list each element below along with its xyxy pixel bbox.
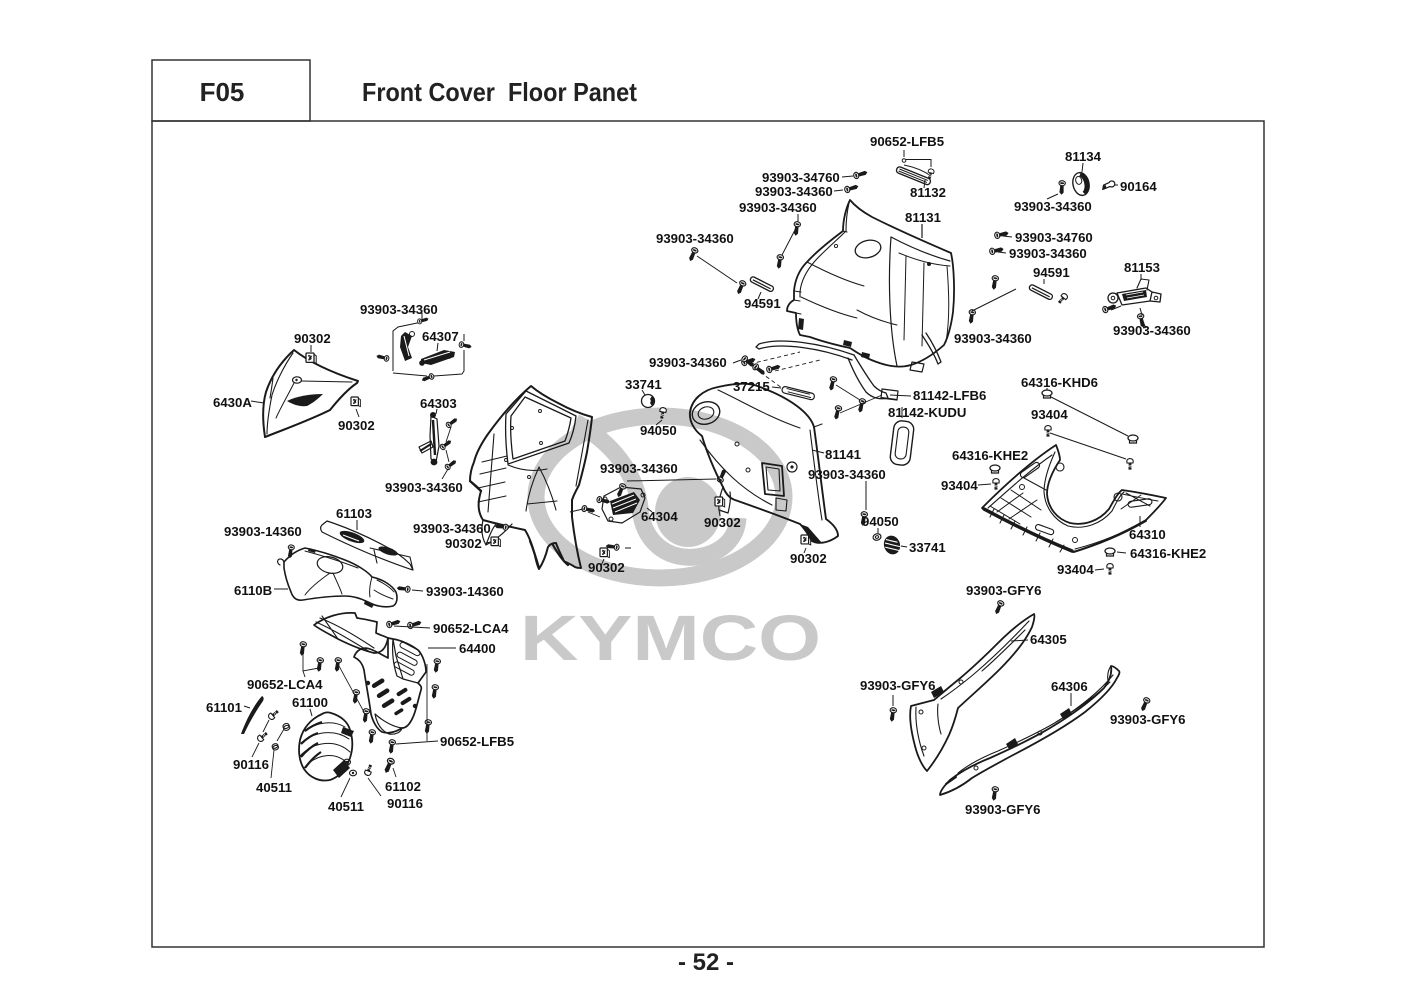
svg-text:94050: 94050: [640, 423, 677, 438]
svg-text:64307: 64307: [422, 329, 459, 344]
svg-text:64316-KHE2: 64316-KHE2: [1130, 546, 1206, 561]
svg-text:81141: 81141: [825, 447, 861, 462]
svg-text:64400: 64400: [459, 641, 496, 656]
svg-text:KYMCO: KYMCO: [520, 602, 821, 674]
svg-text:90652-LCA4: 90652-LCA4: [433, 621, 509, 636]
svg-text:93903-34360: 93903-34360: [808, 467, 886, 482]
svg-text:90116: 90116: [233, 757, 269, 772]
svg-text:93903-34760: 93903-34760: [1015, 230, 1093, 245]
svg-text:93903-14360: 93903-14360: [426, 584, 504, 599]
svg-text:90302: 90302: [704, 515, 741, 530]
svg-text:61103: 61103: [336, 506, 372, 521]
svg-text:93903-34360: 93903-34360: [1014, 199, 1092, 214]
svg-text:- 52 -: - 52 -: [678, 949, 734, 976]
svg-text:64306: 64306: [1051, 679, 1088, 694]
svg-text:64303: 64303: [420, 396, 457, 411]
svg-text:61102: 61102: [385, 779, 421, 794]
svg-text:90116: 90116: [387, 796, 423, 811]
svg-text:93903-34360: 93903-34360: [600, 461, 678, 476]
svg-text:6110B: 6110B: [234, 583, 272, 598]
svg-text:6430A: 6430A: [213, 395, 252, 410]
svg-text:93903-GFY6: 93903-GFY6: [860, 678, 936, 693]
svg-text:Front Cover Floor Panet: Front Cover Floor Panet: [362, 77, 637, 107]
svg-text:93903-34360: 93903-34360: [755, 184, 833, 199]
svg-text:93903-GFY6: 93903-GFY6: [1110, 712, 1186, 727]
svg-text:93903-34760: 93903-34760: [762, 170, 840, 185]
svg-text:90652-LCA4: 90652-LCA4: [247, 677, 323, 692]
svg-text:93404: 93404: [941, 478, 978, 493]
svg-text:93903-34360: 93903-34360: [1113, 323, 1191, 338]
svg-text:93903-34360: 93903-34360: [360, 302, 438, 317]
svg-text:90302: 90302: [294, 331, 331, 346]
svg-text:94591: 94591: [744, 296, 781, 311]
svg-text:F05: F05: [200, 77, 245, 107]
svg-text:93903-34360: 93903-34360: [1009, 246, 1087, 261]
svg-text:90302: 90302: [338, 418, 375, 433]
svg-text:64304: 64304: [641, 509, 678, 524]
svg-text:93903-GFY6: 93903-GFY6: [965, 802, 1041, 817]
svg-text:93903-34360: 93903-34360: [649, 355, 727, 370]
svg-text:81132: 81132: [910, 185, 946, 200]
svg-text:81134: 81134: [1065, 149, 1102, 164]
svg-text:93903-34360: 93903-34360: [413, 521, 491, 536]
svg-text:61100: 61100: [292, 695, 328, 710]
svg-text:93903-14360: 93903-14360: [224, 524, 302, 539]
svg-text:81142-LFB6: 81142-LFB6: [913, 388, 986, 403]
svg-text:81153: 81153: [1124, 260, 1160, 275]
svg-text:64310: 64310: [1129, 527, 1166, 542]
svg-text:90302: 90302: [588, 560, 625, 575]
svg-text:81131: 81131: [905, 210, 941, 225]
svg-text:37215: 37215: [733, 379, 770, 394]
svg-text:90302: 90302: [790, 551, 827, 566]
svg-text:94591: 94591: [1033, 265, 1070, 280]
svg-text:90652-LFB5: 90652-LFB5: [440, 734, 514, 749]
svg-text:93903-34360: 93903-34360: [656, 231, 734, 246]
svg-text:93903-GFY6: 93903-GFY6: [966, 583, 1042, 598]
svg-text:40511: 40511: [256, 780, 292, 795]
svg-text:40511: 40511: [328, 799, 364, 814]
svg-text:90302: 90302: [445, 536, 482, 551]
svg-text:94050: 94050: [862, 514, 899, 529]
svg-text:90164: 90164: [1120, 179, 1157, 194]
svg-text:93903-34360: 93903-34360: [739, 200, 817, 215]
svg-text:33741: 33741: [625, 377, 662, 392]
svg-text:90652-LFB5: 90652-LFB5: [870, 134, 944, 149]
svg-text:93903-34360: 93903-34360: [385, 480, 463, 495]
svg-text:64316-KHD6: 64316-KHD6: [1021, 375, 1098, 390]
svg-text:93903-34360: 93903-34360: [954, 331, 1032, 346]
svg-text:81142-KUDU: 81142-KUDU: [888, 405, 966, 420]
svg-text:93404: 93404: [1031, 407, 1068, 422]
svg-text:33741: 33741: [909, 540, 946, 555]
svg-text:61101: 61101: [206, 700, 242, 715]
svg-text:64316-KHE2: 64316-KHE2: [952, 448, 1028, 463]
svg-text:64305: 64305: [1030, 632, 1067, 647]
svg-text:93404: 93404: [1057, 562, 1094, 577]
